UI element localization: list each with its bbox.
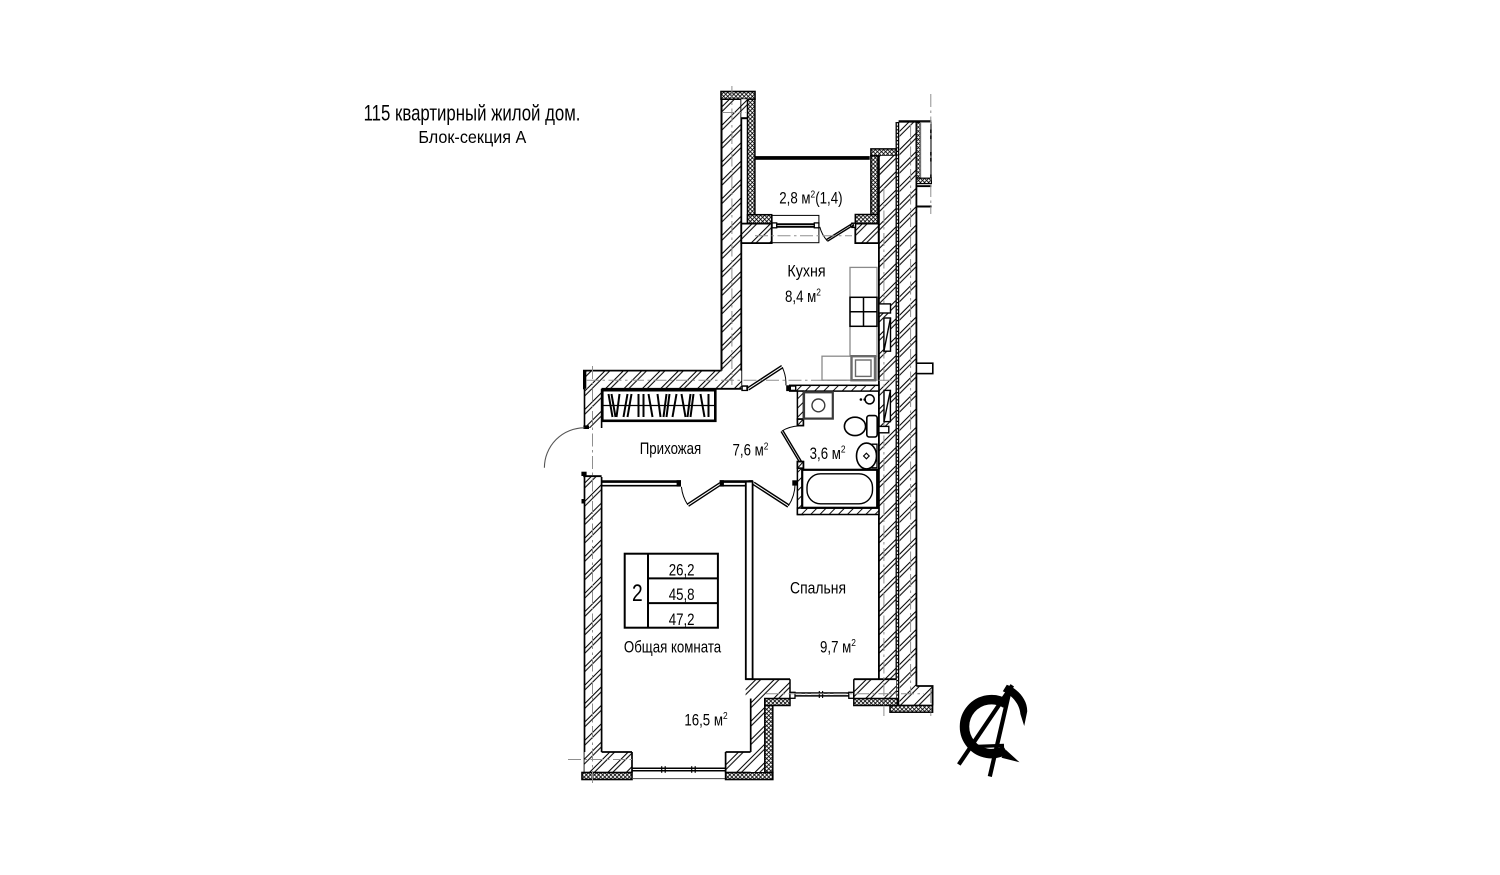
svg-text:9,7 м2: 9,7 м2 bbox=[820, 637, 856, 656]
svg-text:47,2: 47,2 bbox=[669, 611, 695, 630]
svg-text:Кухня: Кухня bbox=[787, 263, 825, 281]
svg-text:Общая комната: Общая комната bbox=[624, 638, 722, 657]
svg-text:3,6 м2: 3,6 м2 bbox=[810, 444, 846, 463]
svg-text:2: 2 bbox=[632, 579, 643, 607]
svg-text:8,4 м2: 8,4 м2 bbox=[785, 287, 821, 306]
svg-text:45,8: 45,8 bbox=[669, 586, 695, 605]
svg-text:Прихожая: Прихожая bbox=[640, 439, 701, 458]
svg-text:Блок-секция А: Блок-секция А bbox=[418, 127, 527, 147]
svg-text:Спальня: Спальня bbox=[790, 579, 846, 597]
svg-text:7,6 м2: 7,6 м2 bbox=[733, 440, 769, 459]
svg-text:16,5 м2: 16,5 м2 bbox=[684, 710, 727, 729]
svg-text:115 квартирный жилой дом.: 115 квартирный жилой дом. bbox=[364, 101, 581, 126]
svg-text:26,2: 26,2 bbox=[669, 561, 695, 580]
